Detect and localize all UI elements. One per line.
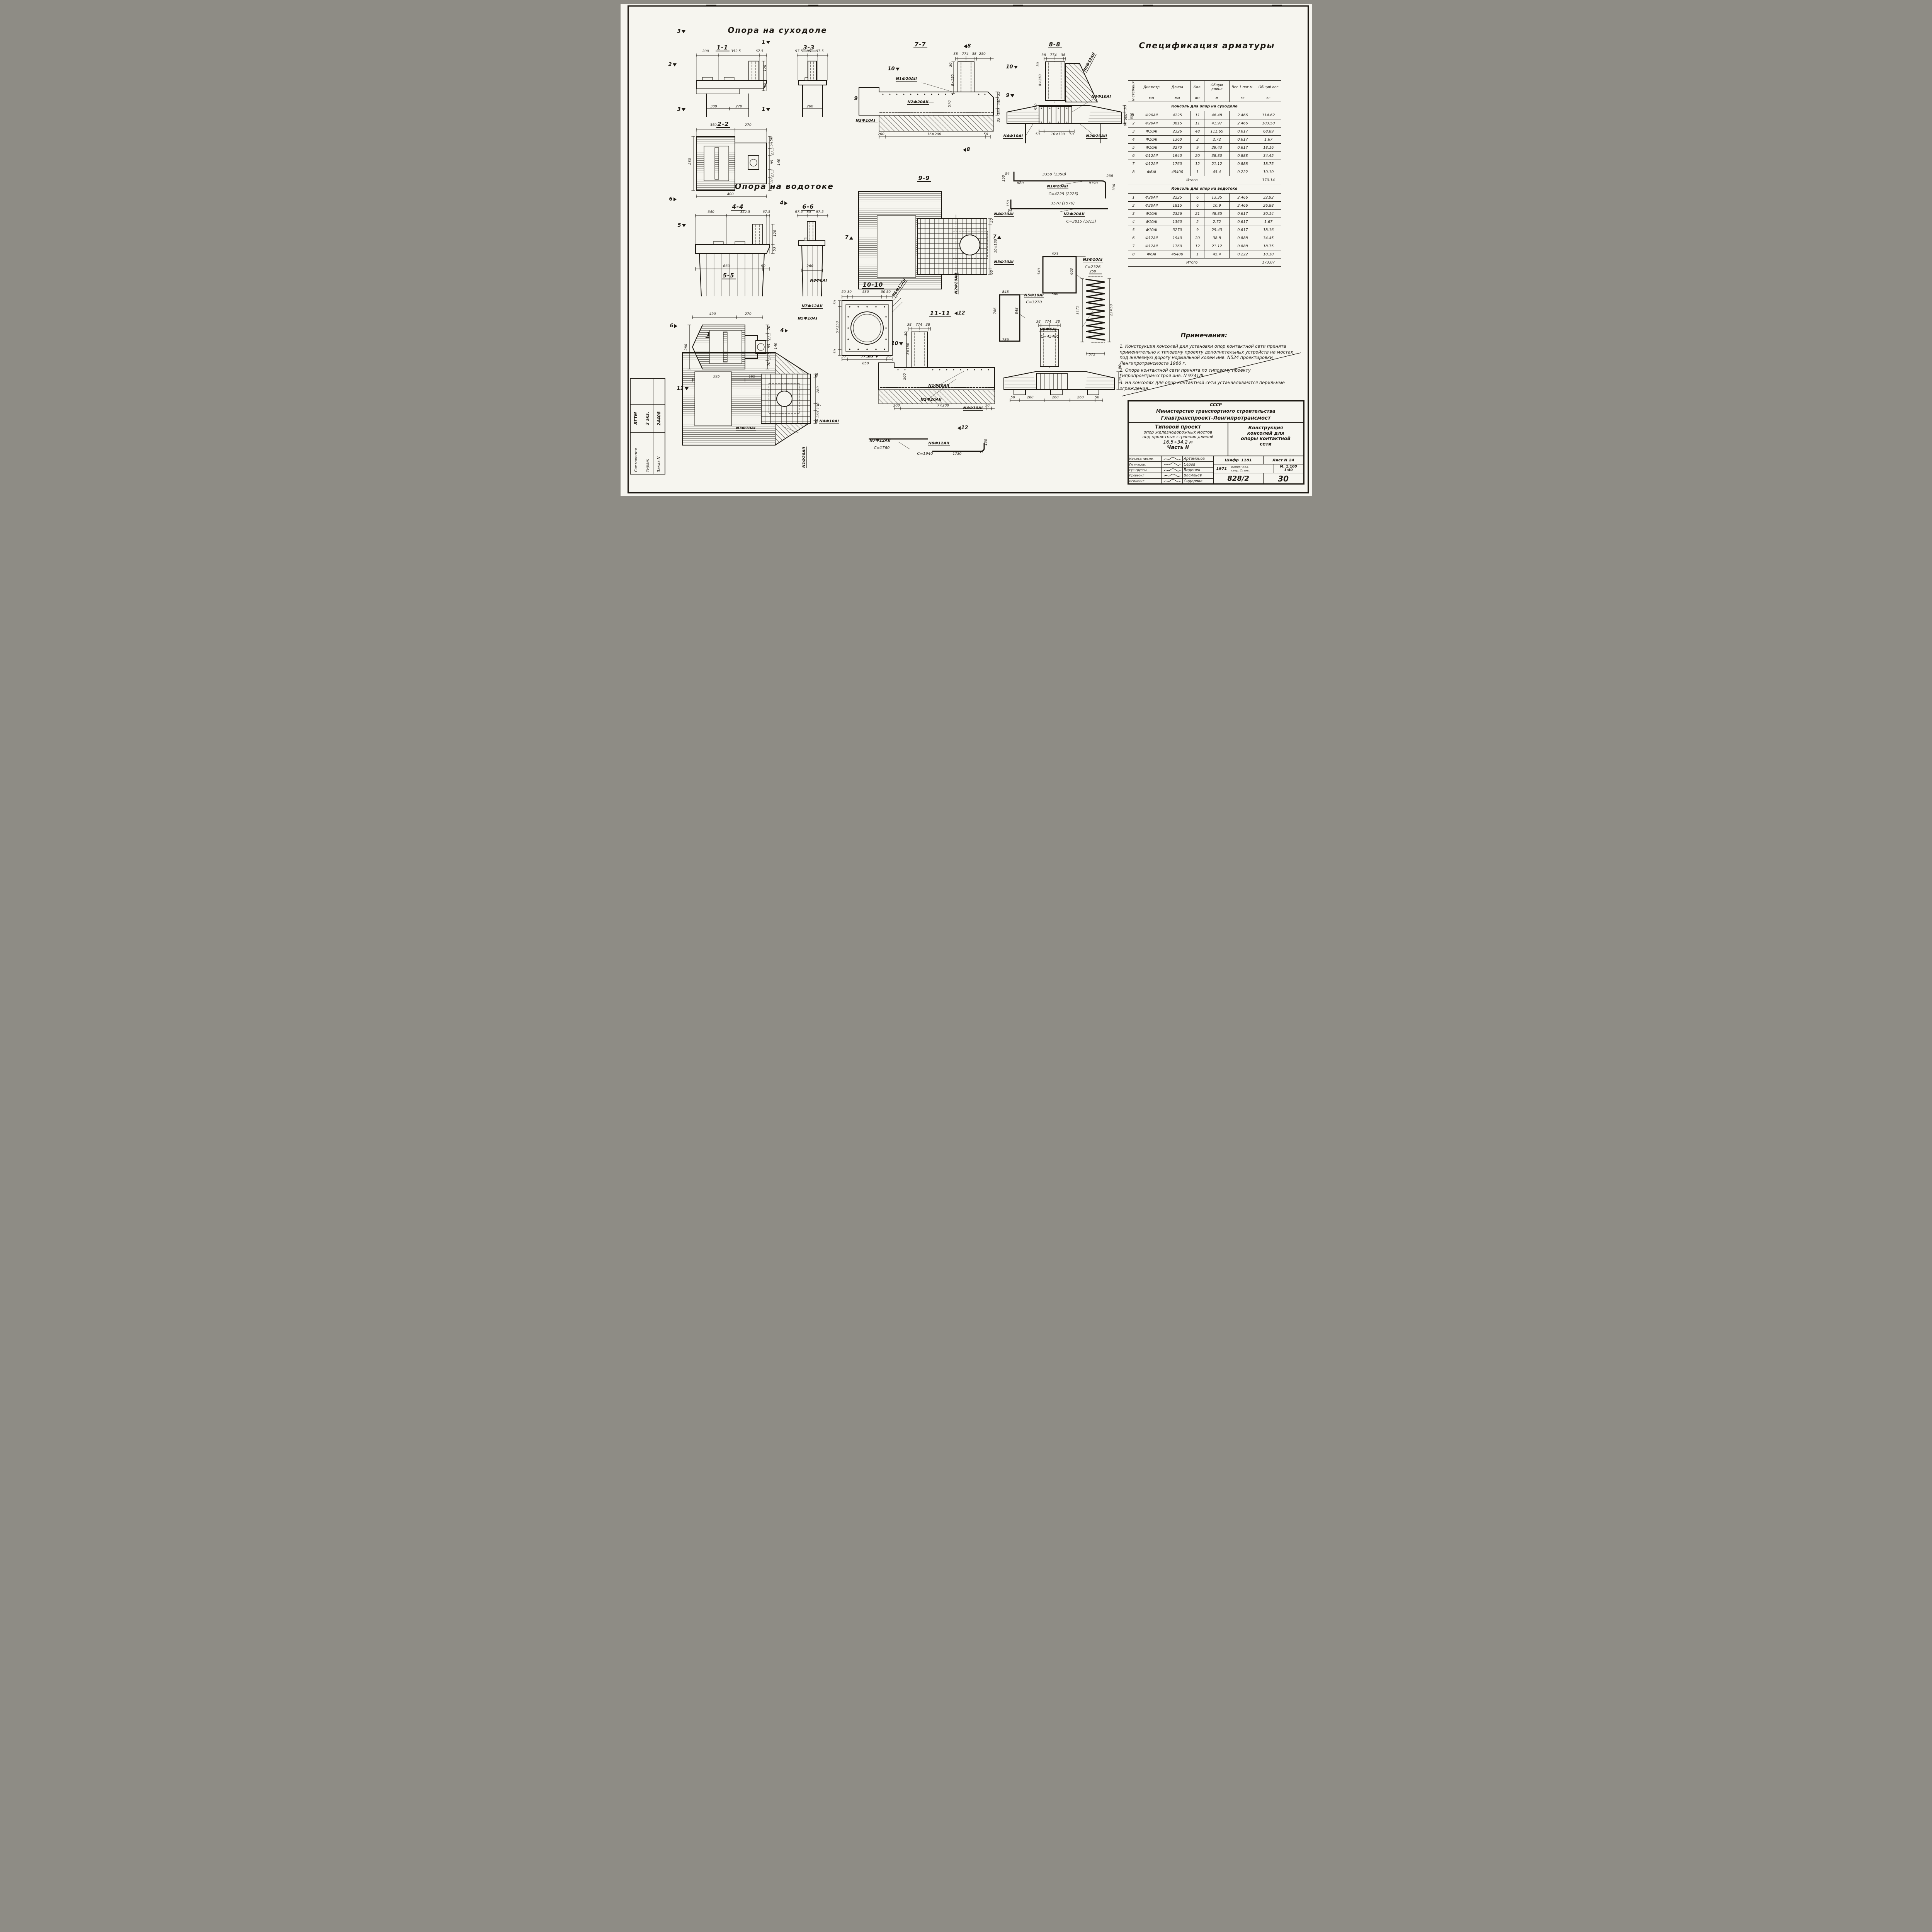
dim-label: 38 xyxy=(954,53,958,56)
bar-callout-n2: N2Ф20АII xyxy=(1063,213,1085,217)
table-row: 7Ф12АII17601221.120.88818.75 xyxy=(1128,242,1281,250)
dim-label: 8×150 xyxy=(1039,74,1042,86)
spec-unit: мм xyxy=(1139,94,1164,102)
spec-header-unit-weight: Вес 1 пог.м. xyxy=(1229,81,1256,94)
dim-label: 50 xyxy=(886,355,891,359)
dim-label: 140 xyxy=(777,159,781,165)
bar-callout-n4: N4Ф10АI xyxy=(994,213,1014,217)
section-cut-arrow-icon xyxy=(964,44,967,48)
table-row: 2Ф20АII38151141.972.466103.50 xyxy=(1128,119,1281,128)
section-title-11-11: 11-11 xyxy=(929,311,952,317)
bar-callout-n3: N3Ф10АI xyxy=(1083,258,1103,262)
dim-label: 50 xyxy=(1070,133,1074,136)
dim-label: 400 xyxy=(727,193,734,196)
scale-cell: М. 1:1001:40 xyxy=(1274,464,1303,473)
spec-total-value: 173.07 xyxy=(1256,259,1281,267)
dim-label: 360 xyxy=(998,108,1001,115)
dim-label: 570 xyxy=(1035,104,1038,110)
section-cut-arrow-icon xyxy=(673,63,677,66)
dim-label: 623 xyxy=(1052,253,1058,256)
year-cell: 1971 xyxy=(1214,464,1230,473)
section-title-7-7: 7-7 xyxy=(913,42,927,48)
signature-row: Нач.отд.тип.пр.Артамонов xyxy=(1129,456,1213,462)
spec-header-qty: Кол. xyxy=(1190,81,1204,94)
table-row: 5Ф10АI3270929.430.61718.16 xyxy=(1128,144,1281,152)
copy-cell: Копир: Кол.свер. Станк. xyxy=(1230,464,1274,473)
drawing-section-13-13 xyxy=(679,345,831,450)
spec-group-2-rows: 1Ф20АII2225613.352.46632.922Ф20АII181561… xyxy=(1128,194,1281,259)
dim-label: 50 xyxy=(834,349,837,354)
section-cut-arrow-icon xyxy=(673,197,677,201)
dim-label: 7×200 xyxy=(937,404,949,408)
fold-mark xyxy=(1272,5,1282,6)
table-row: 3Ф10АI232648111.650.61768.89 xyxy=(1128,128,1281,136)
stamp-extra-cell xyxy=(653,379,665,404)
stamp-extra-cell xyxy=(631,379,642,404)
dim-label: 67.5 xyxy=(756,50,764,53)
dim-label: 60 xyxy=(764,83,767,87)
dim-label: 660 xyxy=(723,265,730,268)
table-row: 6Ф12АII19402038.80.88834.45 xyxy=(1128,234,1281,242)
dim-label: 97.5 xyxy=(816,211,824,214)
cut-marker-12: 12 xyxy=(954,310,965,316)
cut-marker-3: 3 xyxy=(677,29,685,34)
dim-label: 30 xyxy=(949,63,953,67)
dim-label: 70 xyxy=(768,326,771,330)
dim-label: 38 xyxy=(907,323,912,327)
dim-label: 27.5 xyxy=(771,147,774,155)
dim-label: 260 xyxy=(1052,396,1059,400)
dim-label: 260 xyxy=(817,386,820,393)
stamp-row: СветокопияЛГТМ xyxy=(631,379,642,474)
dim-label: 130 xyxy=(817,403,820,409)
dim-label: 50 xyxy=(1124,105,1128,110)
dim-label: 595 xyxy=(713,375,720,379)
dim-label: 50 xyxy=(1011,396,1015,400)
dim-label: 352.5 xyxy=(731,50,741,53)
dim-label: 140 xyxy=(774,343,778,349)
bar-callout-n1: N1Ф20АII xyxy=(896,77,917,82)
dim-label: 560 xyxy=(1052,293,1058,296)
section-cut-arrow-icon xyxy=(784,201,787,205)
dim-label: 27.5 xyxy=(768,332,771,340)
dim-label: 270 xyxy=(745,313,752,316)
bar-callout-n8: N8Ф6АI xyxy=(1039,328,1057,332)
table-row: 1Ф20АII2225613.352.46632.92 xyxy=(1128,194,1281,202)
dim-label: 97.5 xyxy=(816,50,824,53)
section-cut-arrow-icon xyxy=(682,224,686,227)
bar-callout-n4: N4Ф10АI xyxy=(819,420,840,424)
table-row: 4Ф10АI136022.720.6171.67 xyxy=(1128,136,1281,144)
signature-icon xyxy=(1162,456,1183,461)
dim-label: 300 xyxy=(711,105,717,109)
dim-label: 848 xyxy=(1015,308,1019,314)
dim-label: 165 xyxy=(749,375,755,379)
dim-label: 35 xyxy=(997,118,1001,122)
bar-callout-n5: N5Ф10АI xyxy=(1024,294,1044,298)
dim-label: 5×150 xyxy=(836,321,839,333)
sheet-number: 30 xyxy=(1264,473,1303,484)
dim-label: 85 xyxy=(807,211,811,214)
bar-callout-n1: N1Ф20АII xyxy=(1047,185,1068,189)
dim-label: 250 xyxy=(1090,270,1096,274)
dim-label: 572 xyxy=(1089,353,1095,357)
table-row: 2Ф20АII1815610.92.46626.88 xyxy=(1128,202,1281,210)
dim-label: 774 xyxy=(1050,54,1057,57)
bar-callout-n5: N5Ф10АI xyxy=(798,317,818,321)
bar-callout-n4: N4Ф10АI xyxy=(1003,134,1024,139)
dim-label: 774 xyxy=(962,53,969,56)
dim-label: 57 xyxy=(979,451,983,454)
document-number: 828/2 xyxy=(1214,473,1264,484)
spec-total-label: Итого xyxy=(1128,259,1256,267)
dim-label: 38 xyxy=(1036,320,1041,324)
dim-label: 540 xyxy=(1038,268,1041,275)
dim-label: 330 xyxy=(1113,184,1116,190)
dim-label: 850 xyxy=(862,362,869,366)
cipher-cell: Шифр1181 xyxy=(1214,456,1264,464)
dim-label: 50 xyxy=(834,300,837,304)
bar-callout-n3: N3Ф10АI xyxy=(994,260,1014,265)
dim-label: 774 xyxy=(916,323,922,327)
section-cut-arrow-icon xyxy=(997,236,1001,239)
spec-total-value: 370.14 xyxy=(1256,176,1281,184)
stamp-extra-cell xyxy=(642,379,653,404)
dim-label: 120 xyxy=(764,65,767,71)
note-item: 2. Опора контактной сети принята по типо… xyxy=(1120,368,1303,379)
drawing-section-4-4 xyxy=(691,204,782,304)
dim-label: 38 xyxy=(1061,54,1065,57)
signature-icon xyxy=(1162,468,1183,473)
project-title: Типовой проект опор железнодорожных мост… xyxy=(1129,423,1228,456)
title-block: СССР Министерство транспортного строител… xyxy=(1128,400,1304,485)
dim-label: 30 xyxy=(881,291,885,294)
fold-mark xyxy=(706,5,716,6)
heading-dry-support: Опора на суходоле xyxy=(728,26,827,34)
ministry-label: Министерство транспортного строительства xyxy=(1135,408,1297,414)
dim-label: 786 xyxy=(994,308,997,314)
dim-label: 848 xyxy=(1002,291,1009,294)
cut-marker-6: 6 xyxy=(670,323,677,329)
dim-label: 27.5 xyxy=(768,352,771,360)
dim-label: 16×200 xyxy=(927,133,941,136)
spec-group-title: Консоль для опор на водотоке xyxy=(1128,184,1281,194)
table-row: 6Ф12АII19402038.800.88834.45 xyxy=(1128,152,1281,160)
dim-label: 352.5 xyxy=(740,211,750,214)
dim-label: 50 xyxy=(816,373,819,377)
dim-label: 8×150 xyxy=(951,74,955,86)
drawing-section-7-7 xyxy=(854,54,1006,151)
org-label: Главтранспроект-Ленгипротрансмост xyxy=(1129,415,1303,421)
section-cut-arrow-icon xyxy=(849,236,853,240)
dim-label: 38 xyxy=(926,323,930,327)
dim-label: 50 xyxy=(1095,396,1099,400)
dim-label: 85 xyxy=(771,160,774,164)
table-row: 3Ф10АI23262148.850.61730.14 xyxy=(1128,210,1281,218)
dim-label: 280 xyxy=(689,158,692,165)
dim-label: 30 xyxy=(905,332,908,336)
dim-label: 260 xyxy=(807,105,813,109)
dim-label: 67.5 xyxy=(763,211,770,214)
dim-label: 50 xyxy=(886,291,891,294)
notes-block: 1. Конструкция консолей для установки оп… xyxy=(1120,344,1303,393)
table-row: 8Ф6АI45400145.40.22210.10 xyxy=(1128,168,1281,176)
bar-callout-n6: N6Ф12АII xyxy=(928,442,950,446)
cut-marker-2: 2 xyxy=(668,62,677,68)
bar-callout-n2: N2Ф20АII xyxy=(920,398,942,402)
sheets-cell: Лист N24 xyxy=(1264,456,1303,464)
bar-length-label: С=2326 xyxy=(1085,265,1101,269)
dim-label: 50 xyxy=(842,355,846,359)
dim-label: 260 xyxy=(807,265,813,268)
signature-row: Гл.инж.пр.Серов xyxy=(1129,462,1213,467)
dim-label: 250 xyxy=(979,53,986,56)
spec-header-dia: Диаметр xyxy=(1139,81,1164,94)
bar-length-label: С=1760 xyxy=(874,446,890,450)
dim-label: 90 xyxy=(1124,122,1128,126)
drawing-section-11-11 xyxy=(871,325,1000,432)
spec-group-title: Консоль для опор на суходоле xyxy=(1128,102,1281,111)
dim-label: 500 xyxy=(903,373,907,380)
bar-callout-n1: N1Ф20АII xyxy=(928,384,950,388)
dim-label: 786 xyxy=(1002,338,1009,342)
dim-label: 38 xyxy=(1042,54,1046,57)
dim-label: R60 xyxy=(1017,182,1024,185)
bar-length-label: С=3815 (1815) xyxy=(1066,220,1096,224)
dim-label: 85 xyxy=(768,344,771,348)
drawing-section-2-2 xyxy=(691,119,780,202)
note-item: 1. Конструкция консолей для установки оп… xyxy=(1120,344,1303,367)
title-block-header: СССР Министерство транспортного строител… xyxy=(1129,401,1303,423)
table-row: 4Ф10АI136022.720.6171.67 xyxy=(1128,218,1281,226)
section-cut-arrow-icon xyxy=(682,108,685,111)
spec-table: N стержняДиаметрДлинаКол.Общая длинаВес … xyxy=(1128,80,1281,267)
signature-icon xyxy=(1162,462,1183,467)
dim-label: R190 xyxy=(1089,182,1098,185)
dim-label: 50 xyxy=(770,137,774,141)
spec-header-len: Длина xyxy=(1164,81,1190,94)
bar-callout-n2: N2Ф20АII xyxy=(1086,134,1107,139)
dim-label: 70 xyxy=(768,362,771,366)
table-row: 5Ф10АI3270929.430.61718.16 xyxy=(1128,226,1281,234)
dim-label: 50 xyxy=(1036,133,1040,136)
dim-label: 603 xyxy=(1070,268,1074,275)
country-label: СССР xyxy=(1129,403,1303,407)
dim-label: 53 xyxy=(773,247,777,251)
dim-label: 238 xyxy=(1107,175,1113,178)
spec-unit: м xyxy=(1204,94,1230,102)
dim-label: 27.5 xyxy=(771,169,774,177)
dim-label: 490 xyxy=(709,313,716,316)
bar-length-label: 3570 (1570) xyxy=(1051,202,1075,206)
bar-length-label: С=4225 (2225) xyxy=(1049,192,1078,196)
bar-callout-n3: N3Ф10АI xyxy=(736,427,756,431)
bar-length-label: С=45400 xyxy=(1041,335,1059,339)
cut-marker-5: 5 xyxy=(678,223,686,228)
dim-label: 38 xyxy=(1056,320,1060,324)
dim-label: 50 xyxy=(985,404,990,408)
dim-label: 280 xyxy=(685,344,688,350)
side-stamp: СветокопияЛГТМТираж3 экз.Заказ N24408 xyxy=(630,378,665,474)
dim-label: 260 xyxy=(1027,396,1034,400)
dim-label: 1175 xyxy=(1076,306,1079,315)
dim-label: 570 xyxy=(948,100,952,107)
dim-label: 50 xyxy=(842,291,846,294)
dim-label: 20 xyxy=(771,179,774,183)
bar-callout-n3: N3Ф10АI xyxy=(855,119,876,123)
dim-label: 10×130 xyxy=(994,239,998,253)
section-cut-arrow-icon xyxy=(674,324,677,328)
cut-marker-8: 8 xyxy=(964,43,971,49)
dim-label: 774 xyxy=(1045,320,1051,324)
bar-callout-n7: N7Ф12АII xyxy=(869,439,891,443)
fold-mark xyxy=(808,5,818,6)
signature-icon xyxy=(1162,473,1183,478)
dim-label: 50 xyxy=(816,419,819,423)
signature-row: ИсполнилСидорова xyxy=(1129,479,1213,484)
dim-label: 200 xyxy=(702,50,709,53)
stamp-row: Тираж3 экз. xyxy=(642,379,653,474)
signature-row: Рук.группыВиденек xyxy=(1129,468,1213,473)
dim-label: 94 xyxy=(1005,172,1010,176)
dim-label: 340 xyxy=(708,211,714,214)
bar-callout-n4: N4Ф10АI xyxy=(963,406,983,411)
dim-label: 50 xyxy=(984,133,988,136)
dim-label: 23×50 xyxy=(1110,304,1113,316)
cut-marker-7: 7 xyxy=(845,235,853,241)
table-row: 1Ф20АII42251146.482.466114.62 xyxy=(1128,111,1281,119)
spec-unit: кг xyxy=(1256,94,1281,102)
bar-callout-n3: N3Ф10АI xyxy=(1091,95,1112,99)
dim-label: 30 xyxy=(1037,62,1040,66)
dim-label: 200 xyxy=(893,404,900,408)
dim-label: 120 xyxy=(774,230,777,236)
dim-label: 150 xyxy=(1002,175,1006,182)
spec-title: Спецификация арматуры xyxy=(1139,42,1275,50)
cut-marker-6: 6 xyxy=(669,196,677,202)
bar-callout-n8: N8Ф6АI xyxy=(810,279,828,283)
signature-row: ПроверилВасильев xyxy=(1129,473,1213,478)
spec-header-total-len: Общая длина xyxy=(1204,81,1230,94)
dim-label: 150 xyxy=(1007,200,1010,207)
dim-label: 1730 xyxy=(953,452,962,456)
dim-label: 35 xyxy=(997,92,1001,96)
dim-label: 97.5 xyxy=(795,211,803,214)
bar-callout-n1: N1Ф20АII xyxy=(802,446,806,468)
dim-label: 260 xyxy=(1077,396,1084,400)
section-title-8-8: 8-8 xyxy=(1048,42,1062,48)
cut-marker-3: 3 xyxy=(677,107,685,112)
dim-label: 260 xyxy=(817,411,820,418)
drawing-section-6-6 xyxy=(793,204,830,304)
dim-label: 5×150 xyxy=(861,355,872,359)
dim-label: 85 xyxy=(807,50,811,53)
dim-label: 500 xyxy=(1124,114,1128,120)
bar-callout-n7: N7Ф12АII xyxy=(801,304,823,309)
section-cut-arrow-icon xyxy=(954,311,957,315)
dim-label: 150 xyxy=(985,439,988,446)
dim-label: 350 xyxy=(710,124,717,127)
dim-label: 10×130 xyxy=(1051,133,1065,136)
fold-mark xyxy=(1013,5,1023,6)
bar-callout-n2: N2Ф20АII xyxy=(907,100,929,105)
notes-title: Примечания: xyxy=(1181,332,1228,338)
dim-label: 20 xyxy=(771,142,774,146)
bar-length-label: С=1940 xyxy=(917,452,933,456)
dim-label: 530 xyxy=(862,291,869,294)
spec-unit: кг xyxy=(1229,94,1256,102)
table-row: 7Ф12АII17601221.120.88818.75 xyxy=(1128,160,1281,168)
bar-length-label: С=3270 xyxy=(1026,301,1042,304)
spec-unit: мм xyxy=(1164,94,1190,102)
dim-label: 270 xyxy=(745,124,752,127)
dim-label: 97.5 xyxy=(795,50,803,53)
spec-header-num: N стержня xyxy=(1128,81,1139,102)
bar-callout-n2: N2Ф20АII xyxy=(954,272,959,294)
spec-total-label: Итого xyxy=(1128,176,1256,184)
dim-label: 30 xyxy=(847,291,852,294)
dim-label: 8×150 xyxy=(906,343,910,354)
section-cut-arrow-icon xyxy=(682,30,685,33)
bar-length-label: 3350 (1350) xyxy=(1043,173,1066,177)
fold-mark xyxy=(1143,5,1153,6)
spec-header-total-weight: Общий вес xyxy=(1256,81,1281,94)
dim-label: 90 xyxy=(761,265,765,268)
dim-label: 38 xyxy=(972,53,976,56)
spec-unit: шт xyxy=(1190,94,1204,102)
section-cut-arrow-icon xyxy=(785,329,788,333)
dim-label: 150 xyxy=(998,99,1001,105)
drawing-section-3-3 xyxy=(793,44,832,121)
signature-icon xyxy=(1162,479,1183,484)
table-row: 8Ф6АI45400145.40.22210.10 xyxy=(1128,250,1281,259)
dim-label: 50 xyxy=(990,270,994,274)
blueprint-sheet: Опора на суходоле Опора на водотоке Спец… xyxy=(621,4,1312,496)
dim-label: 270 xyxy=(736,105,742,109)
drawing-section-9-9 xyxy=(855,177,992,302)
spec-group-1-rows: 1Ф20АII42251146.482.466114.622Ф20АII3815… xyxy=(1128,111,1281,176)
dim-label: 200 xyxy=(878,133,884,136)
stamp-row: Заказ N24408 xyxy=(653,379,665,474)
dim-label: 50 xyxy=(990,218,994,223)
drawing-section-1-1 xyxy=(691,44,780,121)
dim-label: 50 xyxy=(770,185,774,189)
note-item: 3. На консолях для опор контактной сети … xyxy=(1120,380,1303,391)
signature-rows: Нач.отд.тип.пр.АртамоновГл.инж.пр.СеровР… xyxy=(1129,456,1214,484)
sheet-title: Конструкция консолей для опоры контактно… xyxy=(1228,423,1303,456)
